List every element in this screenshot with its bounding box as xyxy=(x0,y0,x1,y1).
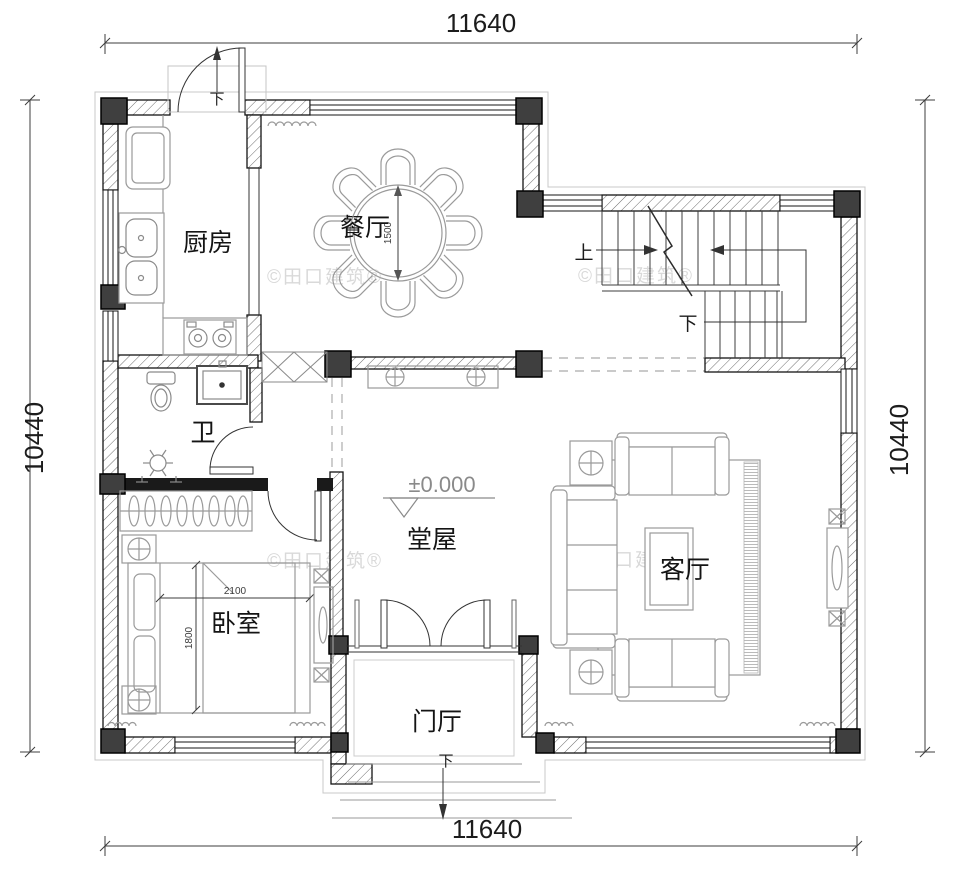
window-dining-top xyxy=(310,100,518,115)
window-living-right xyxy=(841,369,857,433)
label-foyer: 门厅 xyxy=(412,708,462,736)
label-dining-room: 餐厅 xyxy=(340,214,390,242)
nightstand xyxy=(122,686,156,714)
stove xyxy=(184,320,236,354)
kitchen-door-step-label: 下 xyxy=(209,91,224,108)
exit-arrow-icon xyxy=(213,46,221,60)
window-living-bottom xyxy=(586,737,830,753)
elevation-value: ±0.000 xyxy=(408,472,475,497)
kitchen-sink xyxy=(119,213,165,303)
label-bedroom: 卧室 xyxy=(211,610,261,638)
stair-up-label: 上 xyxy=(574,242,593,264)
dim-top: 11640 xyxy=(446,8,516,38)
entry-double-door xyxy=(381,600,490,648)
side-table xyxy=(570,441,612,485)
curtain-coil-icon xyxy=(290,723,325,727)
floor-plan-drawing: 11640 11640 10440 10440 ©田口建筑® ©田口建筑® ©田… xyxy=(0,0,960,880)
toilet xyxy=(147,372,175,411)
label-main-hall: 堂屋 xyxy=(407,526,457,554)
walls xyxy=(103,100,857,784)
watermark: ©田口建筑® xyxy=(267,266,383,288)
dim-right: 10440 xyxy=(884,404,914,476)
foyer-step-label: 下 xyxy=(438,753,453,770)
curtain-coil-icon xyxy=(800,723,835,727)
bedroom-door xyxy=(268,491,321,541)
window-kitchen-left xyxy=(103,190,118,287)
stair-up-arrow-icon xyxy=(644,245,658,255)
window-bedroom-bottom xyxy=(175,737,295,753)
sidelight-panel xyxy=(512,600,516,648)
elevation-marker: ±0.000 xyxy=(383,472,495,517)
sofa-left xyxy=(551,486,617,648)
curtain-coil-icon xyxy=(545,723,573,727)
washbasin xyxy=(197,361,247,404)
label-living-room: 客厅 xyxy=(660,556,710,584)
window-kitchen-left-2 xyxy=(103,311,118,361)
side-table xyxy=(570,650,612,694)
dim-bed-width: 1800 xyxy=(184,626,195,649)
bedroom: 2100 1800 xyxy=(108,491,333,726)
nightstand xyxy=(122,535,156,563)
wardrobe xyxy=(120,491,252,531)
sofa-bottom xyxy=(615,639,729,701)
hall-north-cabinet xyxy=(262,352,327,382)
kitchen-dining-opening xyxy=(249,168,259,315)
dim-bed-length: 2100 xyxy=(224,586,247,597)
floor-plan-page: 11640 11640 10440 10440 ©田口建筑® ©田口建筑® ©田… xyxy=(0,0,960,880)
window-stair-top-left xyxy=(543,195,602,211)
walls-solid xyxy=(118,478,333,491)
sidelight-panel xyxy=(355,600,359,648)
stair-down-label: 下 xyxy=(678,314,697,335)
curtain-coil-icon xyxy=(268,122,316,126)
label-bathroom: 卫 xyxy=(190,419,215,447)
watermark: ©田口建筑® xyxy=(578,265,694,287)
sofa-top xyxy=(615,433,729,495)
stair-down-arrow-icon xyxy=(710,245,724,255)
window-stair-top-right xyxy=(780,195,834,211)
dim-left: 10440 xyxy=(19,402,49,474)
bathroom-door xyxy=(210,427,253,474)
label-kitchen: 厨房 xyxy=(183,229,233,257)
shower-head xyxy=(136,450,182,482)
